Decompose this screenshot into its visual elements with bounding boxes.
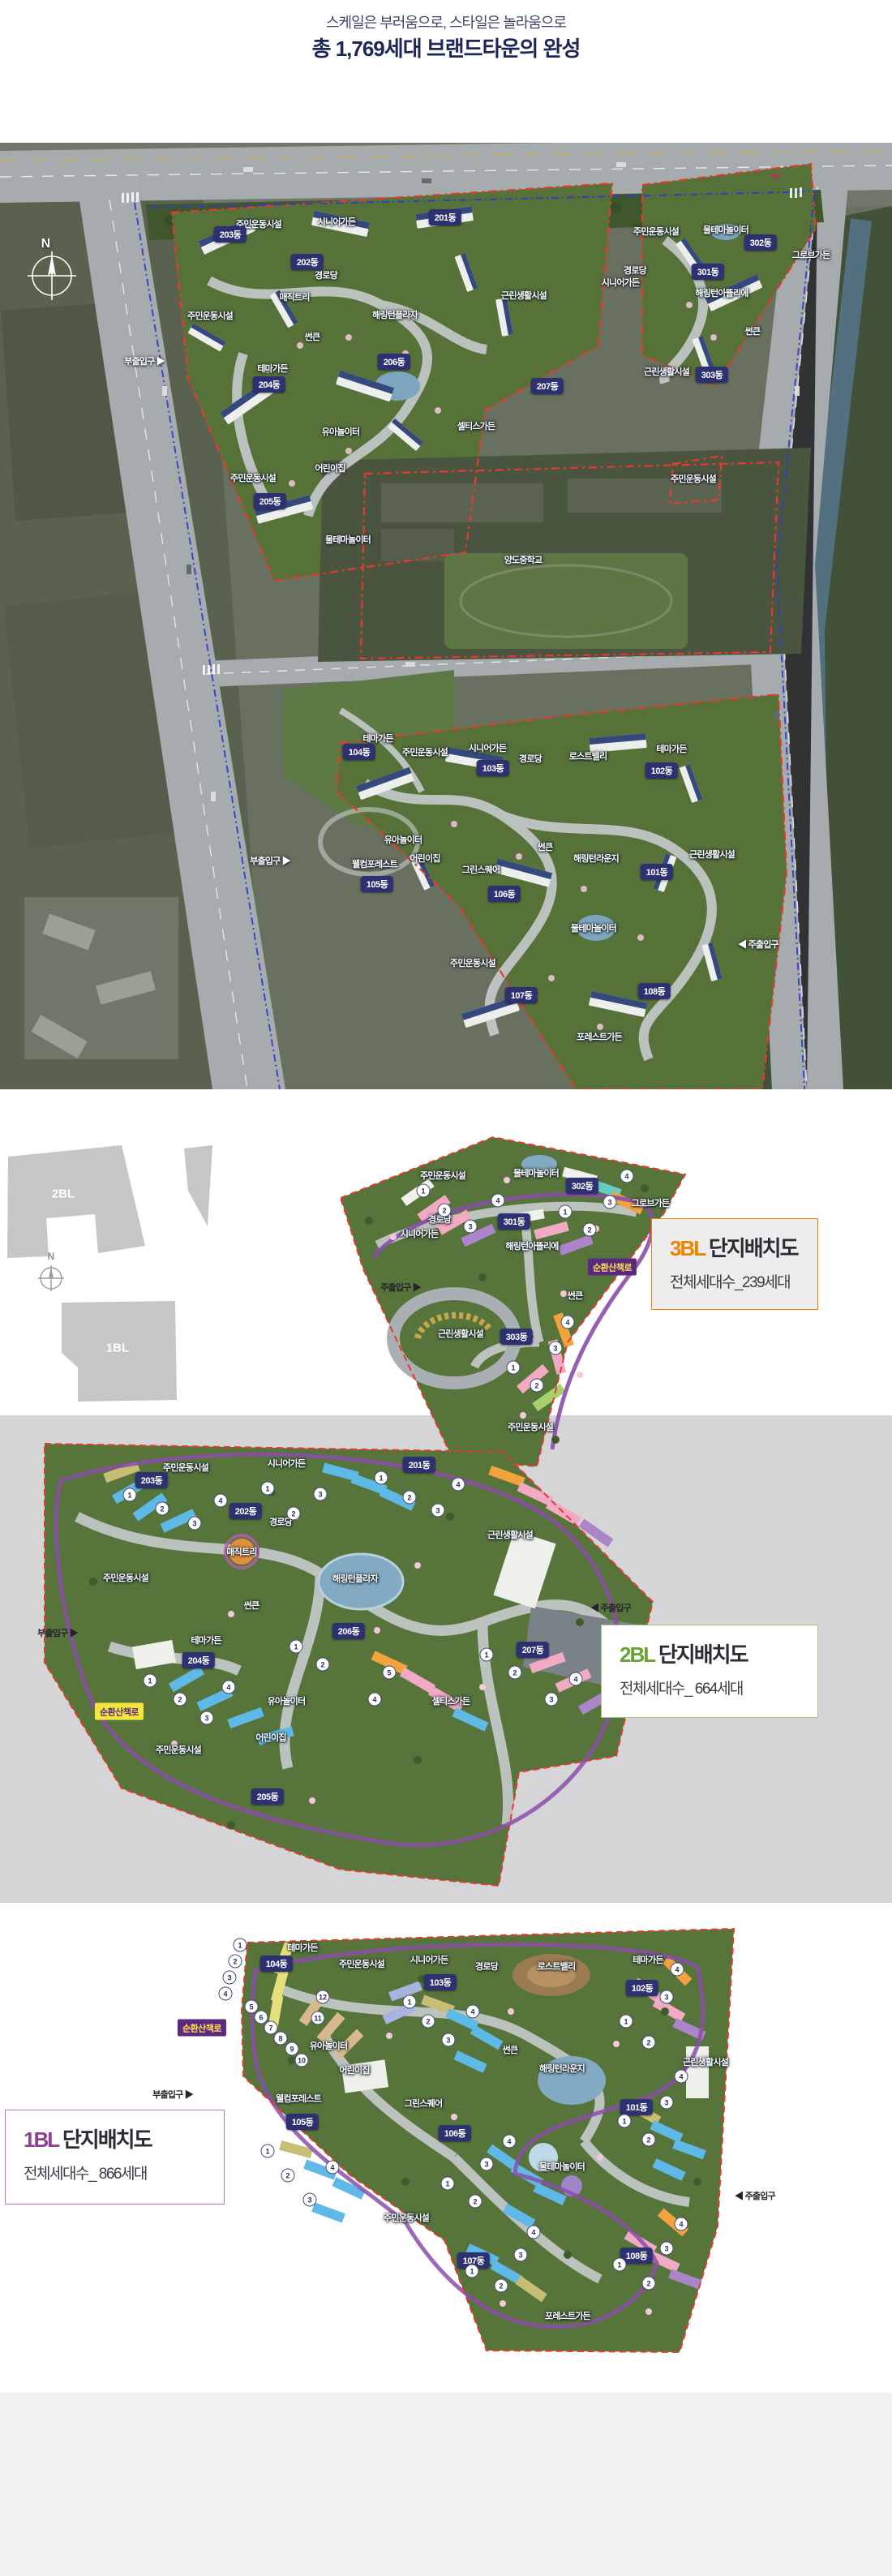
info-box-3bl: 3BL 단지배치도 전체세대수_239세대 <box>651 1218 818 1310</box>
page-subtitle: 스케일은 부러움으로, 스타일은 놀라움으로 <box>0 11 892 32</box>
households-3bl: 전체세대수_239세대 <box>670 1270 817 1292</box>
info-title-3bl: 3BL 단지배치도 <box>670 1232 817 1262</box>
minimap-compass-icon <box>38 1265 64 1291</box>
info-title-1bl: 1BL 단지배치도 <box>24 2123 224 2153</box>
page: 스케일은 부러움으로, 스타일은 놀라움으로 총 1,769세대 브랜드타운의 … <box>0 0 892 2576</box>
minimap-art <box>0 1140 276 1407</box>
block-title-1bl: 단지배치도 <box>62 2127 152 2152</box>
aerial-map-art <box>0 143 892 1089</box>
block-name-1bl: 1BL <box>24 2127 58 2152</box>
households-2bl: 전체세대수_ 664세대 <box>620 1677 817 1698</box>
plan-2bl-art <box>28 1419 677 1906</box>
footer-disclaimer: ! · 상기 CG 이미지는 고객의 이해를 돕기 위해 제작된 것으로 주변 … <box>0 2393 892 2576</box>
info-box-2bl: 2BL 단지배치도 전체세대수_ 664세대 <box>601 1625 818 1718</box>
page-title: 총 1,769세대 브랜드타운의 완성 <box>0 32 892 62</box>
block-name-2bl: 2BL <box>620 1642 654 1667</box>
block-name-3bl: 3BL <box>670 1236 705 1260</box>
plan-1bl-art <box>162 1914 746 2360</box>
block-title-3bl: 단지배치도 <box>709 1236 798 1260</box>
info-title-2bl: 2BL 단지배치도 <box>620 1638 817 1668</box>
block-title-2bl: 단지배치도 <box>658 1642 748 1667</box>
info-box-1bl: 1BL 단지배치도 전체세대수_ 866세대 <box>5 2110 225 2205</box>
households-1bl: 전체세대수_ 866세대 <box>24 2162 224 2183</box>
